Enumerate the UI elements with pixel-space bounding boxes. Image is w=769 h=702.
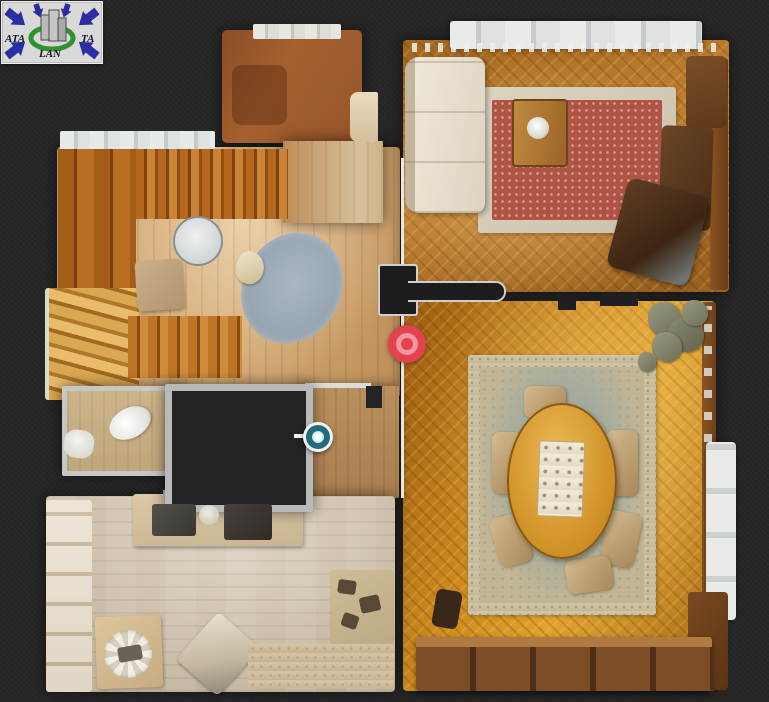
upper-room-window-sill bbox=[253, 24, 341, 39]
upper-room-dark-patch bbox=[232, 65, 287, 125]
corner-cabinet bbox=[686, 56, 726, 128]
table-bowl bbox=[527, 117, 549, 139]
logo-text-left: ATA bbox=[4, 33, 25, 45]
plant bbox=[682, 300, 708, 326]
stove bbox=[224, 504, 272, 540]
left-staircase bbox=[45, 288, 139, 400]
camera-marker-core bbox=[401, 338, 413, 350]
logo-graphic: ATA TA LAN bbox=[2, 2, 102, 63]
upper-room-door bbox=[350, 92, 378, 142]
plant bbox=[652, 332, 682, 362]
upper-corridor-floor[interactable] bbox=[283, 141, 383, 223]
dining-chair bbox=[564, 555, 614, 595]
kitchen-sink bbox=[152, 504, 196, 536]
right-wall-trim bbox=[704, 306, 712, 442]
view-point-glow bbox=[312, 431, 324, 443]
stool bbox=[134, 258, 184, 311]
hall-window-sill bbox=[60, 131, 215, 150]
doorway-gap-bar bbox=[408, 281, 506, 302]
unscanned-room bbox=[165, 384, 313, 512]
sofa bbox=[405, 57, 485, 213]
company-logo: ATA TA LAN bbox=[2, 2, 102, 63]
sideboard bbox=[416, 637, 712, 691]
table-runner bbox=[537, 440, 586, 518]
upper-staircase bbox=[136, 149, 288, 219]
living-room-wall-edge bbox=[412, 43, 720, 52]
hallway-notch bbox=[366, 386, 382, 408]
floorplan-stage: ATA TA LAN bbox=[0, 0, 769, 702]
kitchen-left-cabinets bbox=[46, 500, 92, 692]
counter-item bbox=[199, 505, 219, 525]
kitchen-bottom-counter bbox=[248, 644, 394, 688]
plant bbox=[638, 352, 656, 372]
wardrobe-cabinets bbox=[58, 149, 136, 295]
hallway-top-wall bbox=[305, 383, 371, 388]
camera-position-marker[interactable] bbox=[388, 325, 426, 363]
middle-staircase bbox=[128, 316, 242, 378]
logo-text-right: TA bbox=[81, 33, 94, 45]
wall-notch-1 bbox=[558, 295, 576, 310]
shelf-object bbox=[337, 579, 357, 595]
logo-text-bottom: LAN bbox=[38, 48, 62, 60]
view-point-marker[interactable] bbox=[303, 422, 333, 452]
wall-notch-2 bbox=[600, 293, 638, 306]
round-table bbox=[173, 216, 223, 266]
